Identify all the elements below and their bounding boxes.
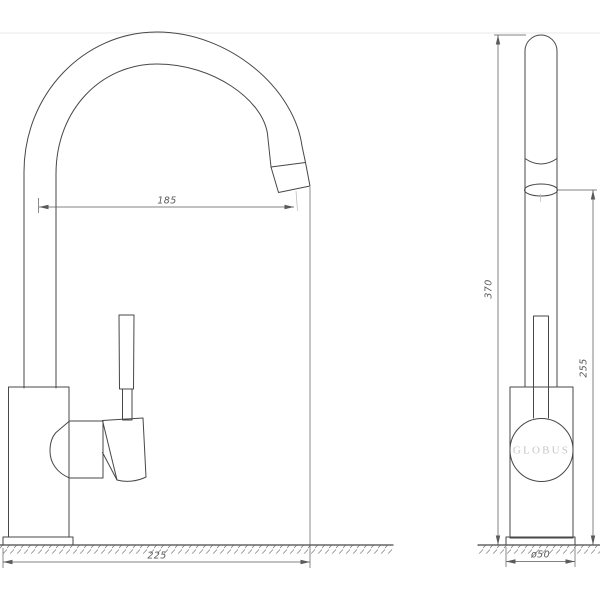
arrowhead-left bbox=[3, 560, 13, 564]
arrowhead-left bbox=[39, 205, 49, 209]
dimension-spout-reach: 185 bbox=[39, 191, 298, 213]
extension-line bbox=[296, 191, 298, 211]
arrowhead-right bbox=[566, 559, 576, 563]
spout-bend-arc-front bbox=[525, 159, 557, 165]
handle-skirt-edge bbox=[103, 453, 118, 481]
dimension-total-depth: 225 bbox=[3, 187, 310, 568]
handle-lever-side bbox=[119, 315, 134, 389]
handle-stem-side bbox=[123, 389, 133, 420]
base-plate-side bbox=[3, 537, 73, 545]
technical-drawing-canvas: 185 225 GLOBUS bbox=[0, 0, 600, 600]
dimension-label-spout-reach: 185 bbox=[157, 196, 176, 207]
technical-drawing-page: 185 225 GLOBUS bbox=[0, 0, 600, 600]
ground-hatching-side bbox=[0, 546, 392, 554]
dimension-total-height: 370 bbox=[484, 35, 527, 545]
dimension-label-total-height: 370 bbox=[484, 279, 495, 298]
faucet-body-side bbox=[9, 387, 70, 537]
arrowhead-top bbox=[496, 35, 500, 45]
cartridge-housing-side bbox=[50, 421, 103, 478]
spout-aerator-tip bbox=[271, 163, 310, 193]
arrowhead-bottom bbox=[496, 536, 500, 546]
side-view: 185 225 bbox=[0, 32, 393, 568]
spout-outer-curve bbox=[24, 32, 306, 388]
arrowhead-bottom bbox=[591, 536, 595, 546]
arrowhead-right bbox=[285, 205, 295, 209]
ground-side bbox=[0, 545, 393, 554]
dimension-outlet-height: 255 bbox=[558, 190, 597, 545]
arrowhead-left bbox=[506, 559, 516, 563]
dimension-label-outlet-height: 255 bbox=[579, 358, 590, 377]
handle-base-side bbox=[103, 418, 147, 481]
arrowhead-right bbox=[301, 560, 311, 564]
dimension-label-base-diameter: ø50 bbox=[530, 550, 550, 561]
dimension-label-total-depth: 225 bbox=[147, 551, 166, 562]
brand-text: GLOBUS bbox=[513, 445, 570, 457]
handle-lever-front bbox=[534, 316, 549, 418]
arrowhead-top bbox=[591, 190, 595, 200]
outlet-ellipse-front bbox=[525, 184, 558, 196]
faucet-body-front bbox=[510, 387, 573, 538]
column-front bbox=[525, 35, 557, 387]
spout-inner-curve bbox=[56, 64, 271, 388]
front-view: GLOBUS 370 255 bbox=[478, 35, 600, 567]
